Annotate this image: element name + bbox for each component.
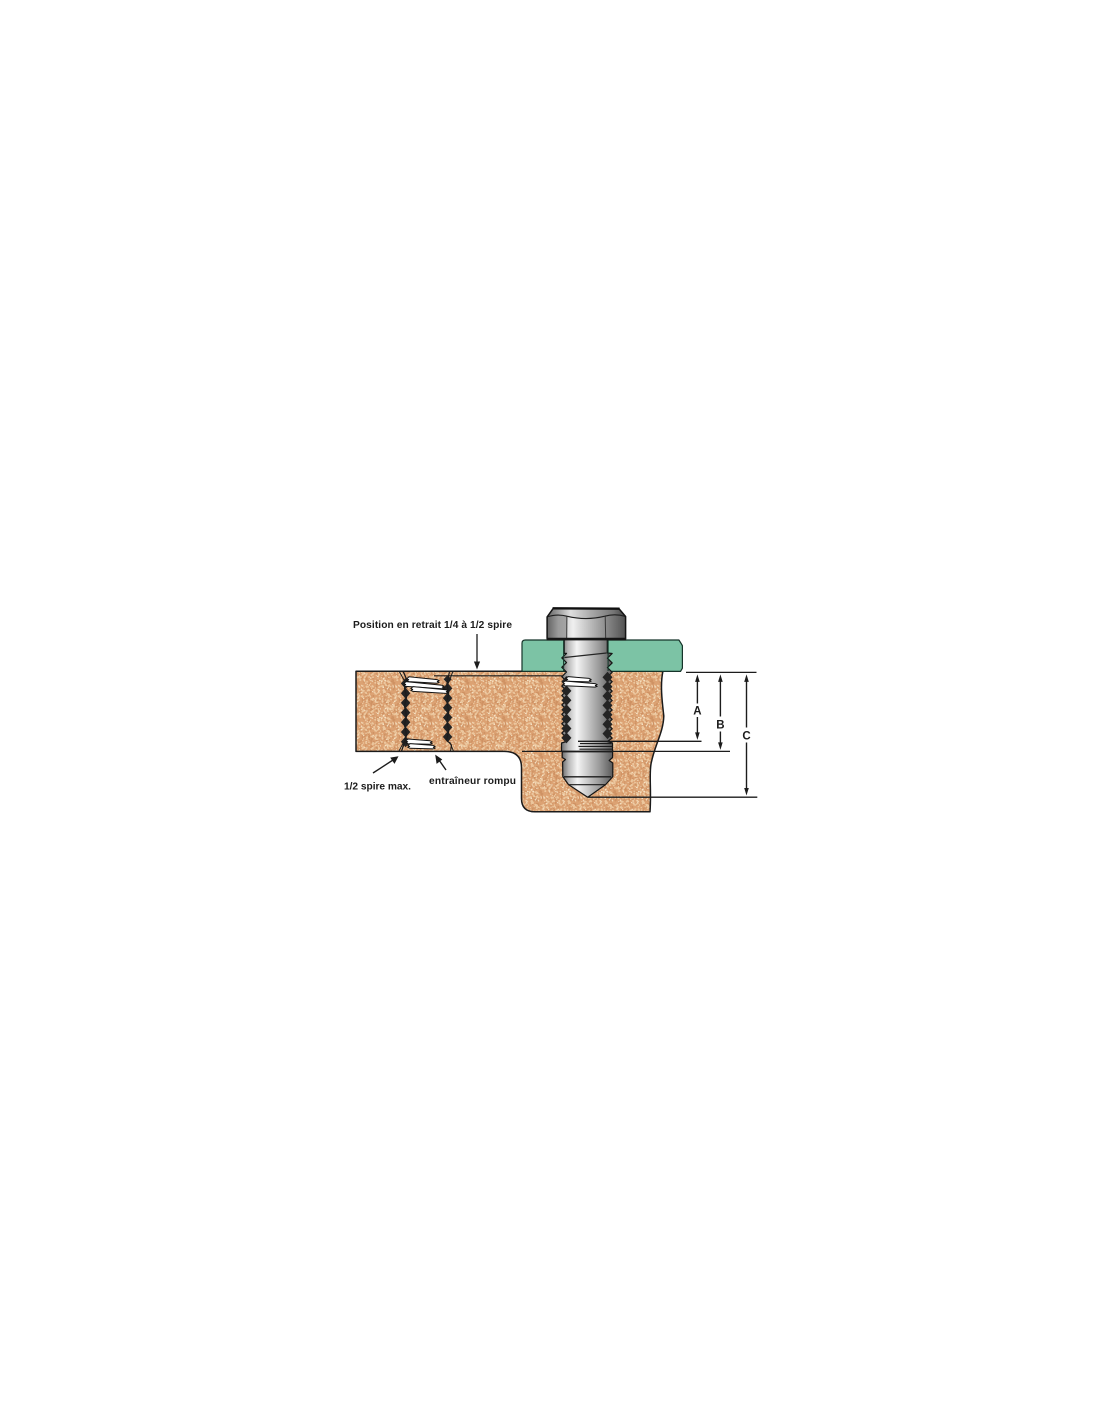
svg-text:A: A <box>693 705 701 717</box>
svg-text:B: B <box>716 720 724 732</box>
svg-text:C: C <box>742 731 750 743</box>
svg-text:Position en retrait 1/4 à 1/2: Position en retrait 1/4 à 1/2 spire <box>353 620 512 631</box>
svg-text:entraîneur rompu: entraîneur rompu <box>429 776 516 787</box>
svg-text:1/2 spire max.: 1/2 spire max. <box>344 782 411 793</box>
